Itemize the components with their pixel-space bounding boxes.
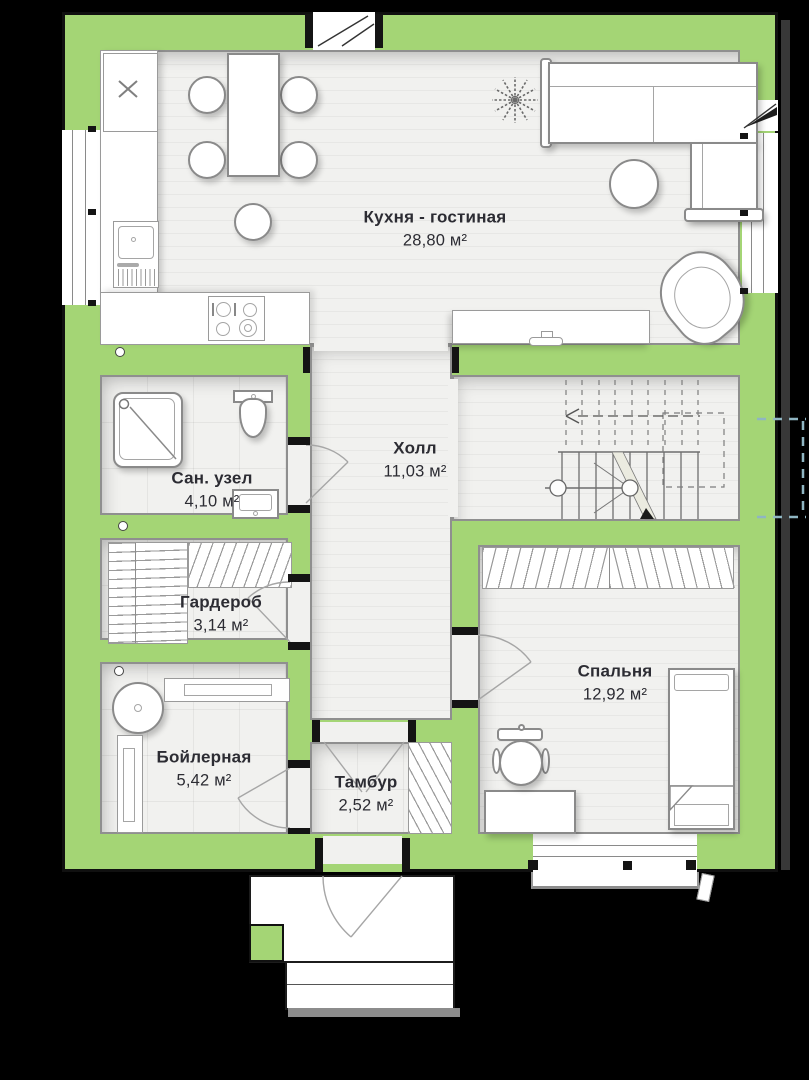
door-jamb (402, 838, 410, 872)
room-name: Кухня - гостиная (364, 206, 507, 229)
shelf-divider (135, 543, 136, 643)
shower-inner (119, 398, 175, 460)
door-jamb (288, 574, 310, 582)
door-jamb (312, 720, 320, 742)
sink-bar (117, 263, 139, 267)
door-jamb (288, 642, 310, 650)
dining-chair (188, 141, 226, 179)
dining-chair (188, 76, 226, 114)
fridge-unit (103, 53, 158, 132)
door-gap-wardrobe (288, 582, 310, 642)
bedroom-wardrobe-hatch (482, 547, 734, 589)
burner (243, 303, 257, 317)
step-line (287, 984, 453, 985)
coffee-table (609, 159, 659, 209)
armchair-seat-line (662, 256, 743, 338)
wall-end-cap (375, 14, 383, 48)
passage-hall-stairs (448, 379, 458, 517)
door-jamb (288, 760, 310, 768)
passage-kitchen-hall (314, 341, 448, 351)
floor-plan: Кухня - гостиная 28,80 м² Холл 11,03 м² … (0, 0, 809, 1080)
door-gap-boiler (288, 768, 310, 828)
vestibule-closet (408, 742, 452, 834)
window-tick (740, 210, 748, 216)
wall-end-cap (452, 347, 459, 373)
window-frame-line (72, 130, 73, 305)
label-vestibule: Тамбур 2,52 м² (335, 771, 398, 816)
door-jamb (452, 627, 478, 635)
room-area: 2,52 м² (335, 794, 398, 816)
room-area: 4,10 м² (171, 490, 252, 512)
bed (668, 668, 735, 830)
window-tick (88, 209, 96, 215)
burner-bracket (212, 303, 214, 316)
room-name: Спальня (578, 660, 653, 683)
radiator-slot (123, 748, 135, 822)
porch-pillar (249, 924, 284, 962)
burner-bracket (234, 303, 236, 316)
sink-drainer (118, 269, 155, 286)
sink-basin (118, 226, 154, 259)
hatch-left (483, 548, 609, 588)
room-name: Сан. узел (171, 467, 252, 490)
island-sink (529, 337, 563, 346)
label-hall: Холл 11,03 м² (383, 437, 446, 482)
downpipe (696, 873, 714, 902)
window-tick (686, 860, 696, 870)
wall-break-top (313, 12, 375, 50)
desk (484, 790, 576, 834)
window-bedroom-bottom (533, 834, 697, 872)
room-area: 28,80 м² (364, 229, 507, 251)
room-area: 3,14 м² (180, 614, 262, 636)
door-jamb (408, 720, 416, 742)
hob (208, 296, 265, 341)
door-gap-bedroom (452, 635, 478, 700)
window-tick (740, 288, 748, 294)
window-kitchen-left (62, 130, 100, 305)
door-gap-vestibule (320, 722, 408, 742)
door-jamb (288, 437, 310, 445)
kitchen-counter-bottom (100, 292, 310, 345)
wardrobe-shelf-left (108, 542, 188, 644)
stairs-floor (452, 375, 740, 521)
dining-table (227, 53, 280, 177)
chair-seat (499, 740, 543, 786)
dining-chair (280, 141, 318, 179)
stool (234, 203, 272, 241)
office-chair (492, 726, 550, 788)
sofa-seat-divider (653, 86, 654, 142)
room-area: 11,03 м² (383, 460, 446, 482)
hatch-right (609, 548, 735, 588)
window-tick (88, 126, 96, 132)
porch-steps (285, 961, 455, 1010)
room-area: 12,92 м² (578, 683, 653, 705)
wall-end-cap (305, 14, 313, 48)
wall-end-cap (303, 347, 310, 373)
label-bathroom: Сан. узел 4,10 м² (171, 467, 252, 512)
bedroom-window-sill (531, 872, 699, 889)
window-tick (623, 861, 632, 870)
island-faucet (541, 331, 553, 338)
room-hall-floor (310, 345, 452, 720)
kitchen-sink (113, 221, 159, 288)
pipe-point (118, 521, 128, 531)
sink-drain-dot (131, 237, 136, 242)
label-kitchen-living: Кухня - гостиная 28,80 м² (364, 206, 507, 251)
pipe-point (115, 347, 125, 357)
window-tick (740, 133, 748, 139)
label-bedroom: Спальня 12,92 м² (578, 660, 653, 705)
burner-inner (244, 324, 252, 332)
door-jamb (315, 838, 323, 872)
window-tick (528, 860, 538, 870)
entrance-threshold (323, 864, 402, 872)
door-gap-bathroom (288, 445, 310, 505)
chair-knob (518, 724, 525, 731)
sofa-back-line (702, 144, 703, 216)
boiler-shelf-top (164, 678, 290, 702)
sofa-armrest-bottom (684, 208, 764, 222)
wardrobe-shelf-top (188, 542, 292, 588)
room-area: 5,42 м² (157, 769, 252, 791)
label-boiler: Бойлерная 5,42 м² (157, 746, 252, 791)
room-name: Гардероб (180, 591, 262, 614)
sofa-seat-horizontal (548, 62, 758, 144)
room-name: Тамбур (335, 771, 398, 794)
dining-chair (280, 76, 318, 114)
radiator-left (117, 735, 143, 833)
burner (216, 322, 230, 336)
door-jamb (288, 505, 310, 513)
window-frame-line (533, 856, 697, 857)
bed-pillow (674, 674, 729, 691)
shower-tray (113, 392, 183, 468)
window-frame-line (85, 130, 86, 305)
boiler-center (134, 704, 142, 712)
room-name: Холл (383, 437, 446, 460)
porch-shadow (288, 1008, 460, 1017)
room-name: Бойлерная (157, 746, 252, 769)
pipe-point (114, 666, 124, 676)
boiler (112, 682, 164, 734)
burner (216, 302, 231, 317)
wall-shadow-strip (781, 20, 790, 870)
window-frame-line (533, 845, 697, 846)
washbasin-tap (253, 511, 258, 516)
label-wardrobe: Гардероб 3,14 м² (180, 591, 262, 636)
door-jamb (288, 828, 310, 834)
door-jamb (452, 700, 478, 708)
bed-footboard (674, 804, 729, 826)
window-tick (88, 300, 96, 306)
sofa-seat-vertical (690, 142, 758, 218)
shelf-slot (184, 684, 272, 696)
